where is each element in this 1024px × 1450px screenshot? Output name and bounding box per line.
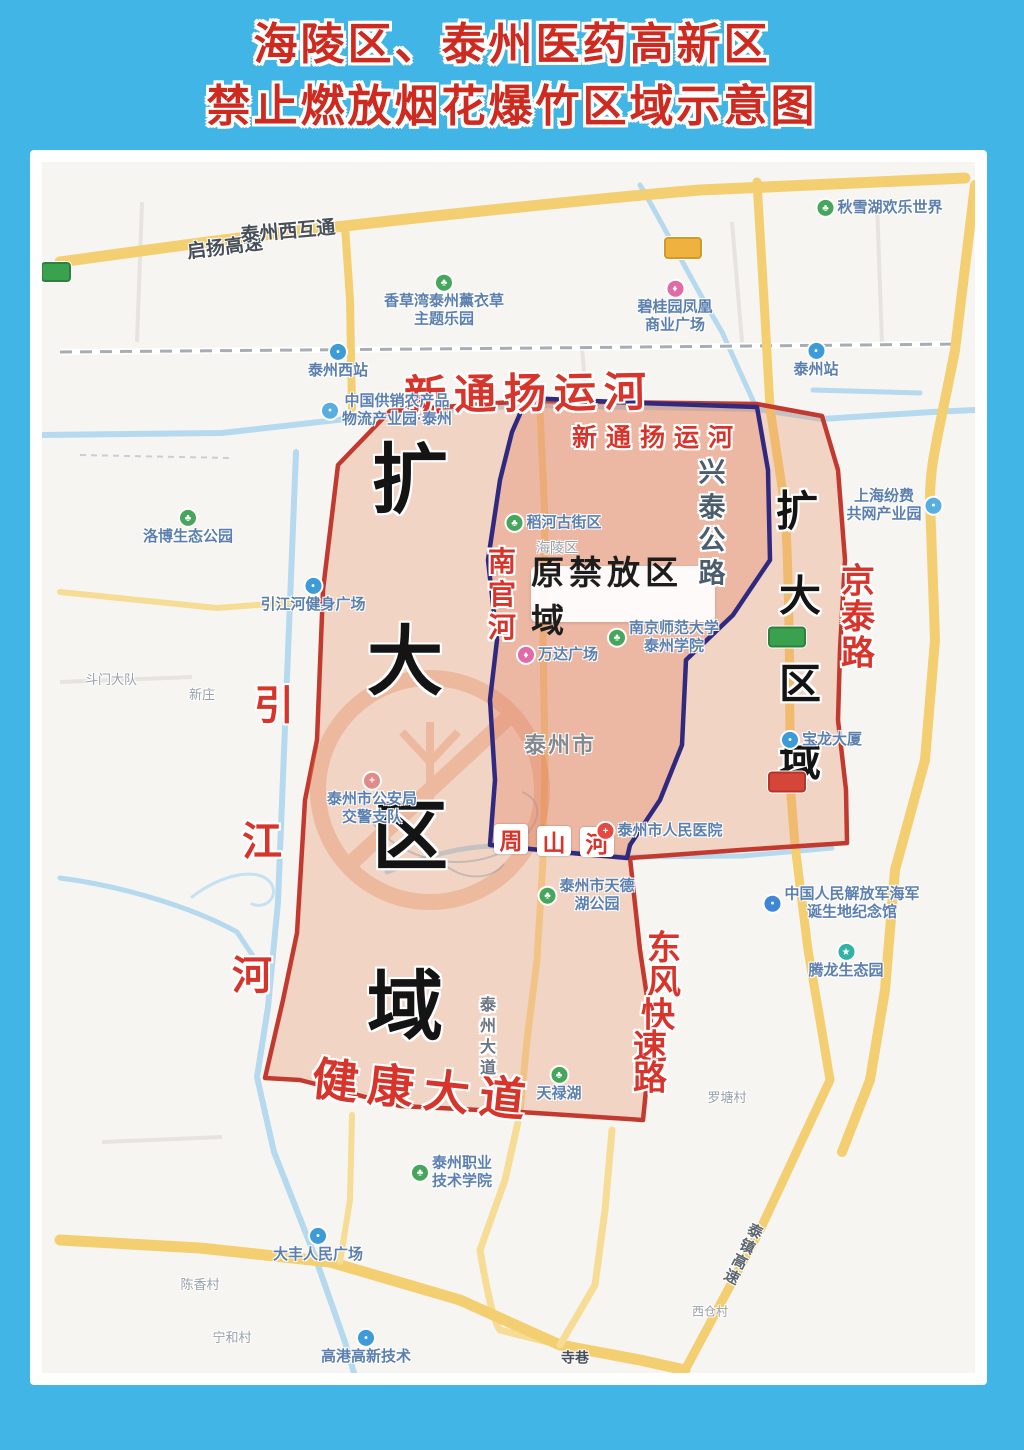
poi-biguiyuan-phoenix-plaza: ♦碧桂园凤凰商业广场: [637, 281, 712, 336]
poi-ninghe-village: 宁和村: [212, 1330, 251, 1346]
poi-label: 西仓村: [692, 1305, 728, 1320]
road-name-char: 道: [480, 1054, 496, 1078]
poi-traffic-police: +泰州市公安局交警支队: [327, 773, 417, 828]
poi-label: 中国供销农产品物流产业园·泰州: [342, 393, 452, 430]
poi-label: 陈香村: [180, 1277, 219, 1293]
national-road-badge: [768, 772, 806, 793]
poi-nanshida-taizhou-college: ♣南京师范大学泰州学院: [609, 620, 719, 657]
original-zone-caption: 原禁放区域: [531, 566, 715, 622]
poi-sixiang: 寺巷: [561, 1349, 589, 1366]
poi-hailing-district-label: 海陵区: [536, 539, 578, 556]
poi-tenglong-eco-area: ★腾龙生态园: [808, 944, 883, 980]
poi-label: 宁和村: [212, 1330, 251, 1346]
river-short-east: [813, 390, 920, 393]
poi-label: 腾龙生态园: [808, 962, 883, 980]
road-name-char: 路: [699, 552, 726, 591]
poi-label: 斗门大队: [85, 672, 137, 688]
road-name-char: 路: [633, 1051, 667, 1100]
park-icon: ♣: [506, 515, 522, 531]
road-name-char: 河: [488, 606, 516, 646]
expanded-zone-char: 大: [779, 563, 821, 624]
poi-tiandehu-park: ♣泰州市天德湖公园: [539, 878, 634, 915]
road-name-char: 江: [242, 809, 282, 867]
poi-label: 新庄: [189, 687, 215, 703]
poi-label: 稻河古街区: [526, 514, 601, 532]
road-south-branch: [560, 1130, 612, 1345]
expanded-zone-char: 区: [779, 651, 821, 712]
mall-icon: ♦: [667, 281, 683, 297]
poi-label: 香草湾泰州薰衣草主题乐园: [384, 293, 504, 330]
station-icon: •: [358, 1330, 374, 1346]
poi-daohe-old-street: ♣稻河古街区: [506, 514, 601, 532]
poi-label: 寺巷: [561, 1349, 589, 1366]
poi-gaogang-hitech: •高港高新技术: [321, 1330, 411, 1366]
poi-xinzhuang: 新庄: [189, 687, 215, 703]
river-southwest: [60, 878, 257, 962]
poi-label: 海陵区: [536, 539, 578, 556]
stream-meander: [192, 874, 274, 905]
poi-label: 泰州市公安局交警支队: [327, 791, 417, 828]
poi-wanda-plaza: ♦万达广场: [518, 646, 598, 664]
poi-luobo-eco-park: ♣洛博生态公园: [143, 510, 233, 546]
poi-label: 碧桂园凤凰商业广场: [637, 299, 712, 336]
poi-baolong-tower: •宝龙大厦: [782, 731, 862, 749]
poi-taizhou-city-label: 泰州市: [524, 733, 596, 760]
poi-label: 洛博生态公园: [143, 528, 233, 546]
poi-tianluhu: ♣天禄湖: [536, 1067, 581, 1103]
expanded-zone-char: 扩: [776, 478, 818, 539]
poi-qiuxuehu-happy-world: ♣秋雪湖欢乐世界: [817, 199, 942, 217]
poi-label: 大丰人民广场: [273, 1246, 363, 1264]
poi-taizhou-peoples-hospital: +泰州市人民医院: [597, 822, 722, 840]
poi-dafeng-peoples-square: •大丰人民广场: [273, 1228, 363, 1264]
park-icon: ♣: [412, 1165, 428, 1181]
station-icon: •: [305, 578, 321, 594]
road-name-char: 河: [232, 943, 272, 1001]
park-icon: ♣: [609, 630, 625, 646]
poster-title: 海陵区、泰州医药高新区 禁止燃放烟花爆竹区域示意图: [0, 14, 1024, 138]
industry-icon: •: [926, 498, 942, 514]
expanded-zone-char: 大: [367, 600, 443, 710]
poi-label: 泰州市: [524, 733, 596, 760]
poi-lavender-theme-park: ♣香草湾泰州薰衣草主题乐园: [384, 275, 504, 330]
road-west-branch: [345, 226, 352, 408]
poi-taizhou-west-station: •泰州西站: [308, 344, 368, 380]
poi-xicang-village: 西仓村: [692, 1305, 728, 1320]
poi-chenxiang-village: 陈香村: [180, 1277, 219, 1293]
park-icon: ♣: [817, 200, 833, 216]
label-xintongyang-canal-inner: 新通扬运河: [572, 418, 742, 454]
poster-page: { "title": { "line1": "海陵区、泰州医药高新区", "li…: [0, 0, 1024, 1450]
district-boundary-dashed: [80, 455, 230, 458]
poi-label: 秋雪湖欢乐世界: [837, 199, 942, 217]
expanded-zone-char: 扩: [372, 418, 448, 528]
attraction-icon: ★: [838, 944, 854, 960]
park-icon: ♣: [551, 1067, 567, 1083]
station-icon: •: [310, 1228, 326, 1244]
poi-shanghai-industry-park: •上海纷费共网产业园: [846, 488, 941, 525]
poi-label: 宝龙大厦: [802, 731, 862, 749]
zhoushan-river-char: 周: [494, 824, 528, 854]
industry-icon: •: [322, 403, 338, 419]
poi-navy-birthplace-memorial: •中国人民解放军海军诞生地纪念馆: [764, 886, 919, 923]
map-canvas: 新通扬运河 新通扬运河 健康大道 泰镇高速 原禁放区域 扩大区域扩大区域引江河南…: [30, 150, 987, 1385]
poi-doumen-dadui: 斗门大队: [85, 672, 137, 688]
poi-taizhou-station: •泰州站: [793, 343, 838, 379]
poi-label: 泰州市天德湖公园: [559, 878, 634, 915]
title-line-1: 海陵区、泰州医药高新区: [0, 14, 1024, 76]
station-icon: •: [782, 732, 798, 748]
road-name-char: 兴: [699, 451, 726, 490]
poi-label: 天禄湖: [536, 1085, 581, 1103]
museum-icon: •: [764, 896, 780, 912]
park-icon: ♣: [180, 510, 196, 526]
park-icon: ♣: [539, 888, 555, 904]
poi-label: 万达广场: [538, 646, 598, 664]
title-line-2: 禁止燃放烟花爆竹区域示意图: [0, 76, 1024, 138]
zhoushan-river-char: 山: [537, 826, 571, 856]
poi-yinjiang-fitness-plaza: •引江河健身广场: [260, 578, 365, 614]
poi-label: 高港高新技术: [321, 1348, 411, 1366]
poi-label: 中国人民解放军海军诞生地纪念馆: [784, 886, 919, 923]
poi-label: 泰州职业技术学院: [432, 1155, 492, 1192]
hospital-icon: +: [597, 823, 613, 839]
road-name-char: 引: [254, 673, 294, 731]
poi-taizhou-polytechnic-college: ♣泰州职业技术学院: [412, 1155, 492, 1192]
mall-icon: ♦: [518, 647, 534, 663]
poi-label: 泰州市人民医院: [617, 822, 722, 840]
poi-label: 罗塘村: [707, 1090, 746, 1106]
park-icon: ♣: [436, 275, 452, 291]
poi-label: 泰州站: [793, 361, 838, 379]
road-name-char: 路: [841, 626, 875, 675]
poi-luotang-village: 罗塘村: [707, 1090, 746, 1106]
provincial-road-badge: [768, 627, 806, 648]
poi-label: 南京师范大学泰州学院: [629, 620, 719, 657]
poi-label: 泰州西站: [308, 362, 368, 380]
police-icon: +: [364, 773, 380, 789]
station-icon: •: [330, 344, 346, 360]
station-icon: •: [808, 343, 824, 359]
provincial-road-badge: [41, 262, 71, 282]
expressway-badge: [664, 237, 702, 259]
poi-label: 上海纷费共网产业园: [846, 488, 921, 525]
poi-gongxiao-logistics-park: •中国供销农产品物流产业园·泰州: [322, 393, 452, 430]
poi-label: 引江河健身广场: [260, 596, 365, 614]
expanded-zone-char: 域: [367, 945, 443, 1055]
